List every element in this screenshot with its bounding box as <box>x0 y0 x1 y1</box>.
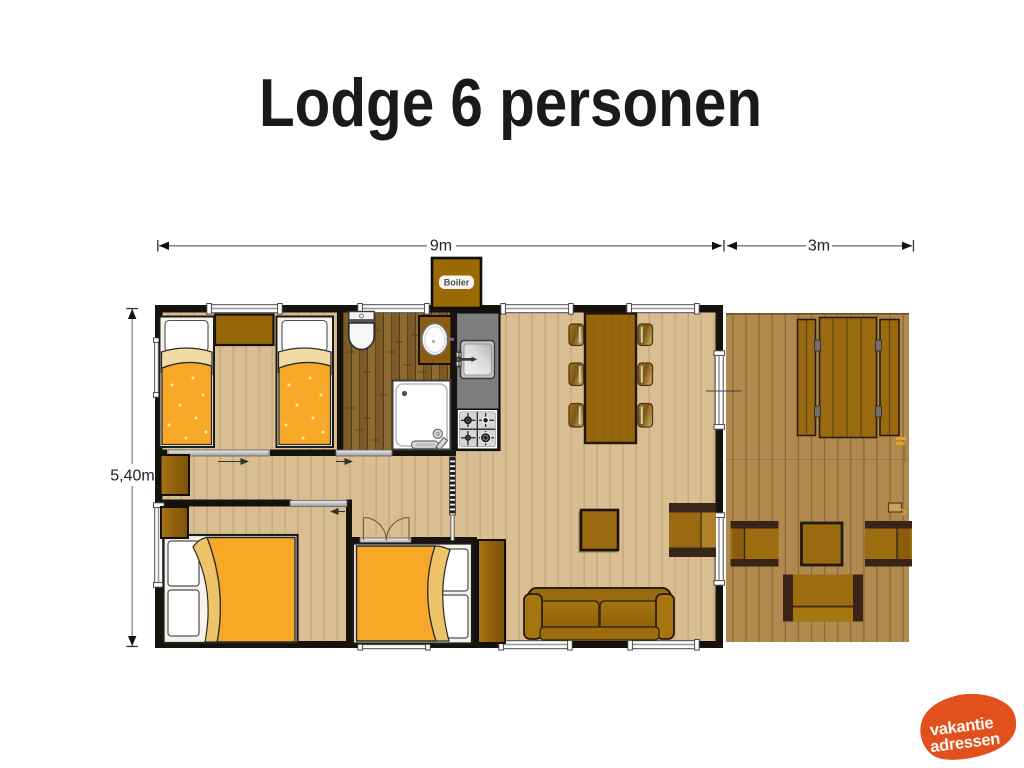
svg-text:5,40m: 5,40m <box>110 468 154 485</box>
svg-text:Boiler: Boiler <box>444 278 470 288</box>
svg-text:Lodge 6 personen: Lodge 6 personen <box>259 65 762 141</box>
svg-text:3m: 3m <box>808 238 830 255</box>
svg-text:9m: 9m <box>430 238 452 255</box>
